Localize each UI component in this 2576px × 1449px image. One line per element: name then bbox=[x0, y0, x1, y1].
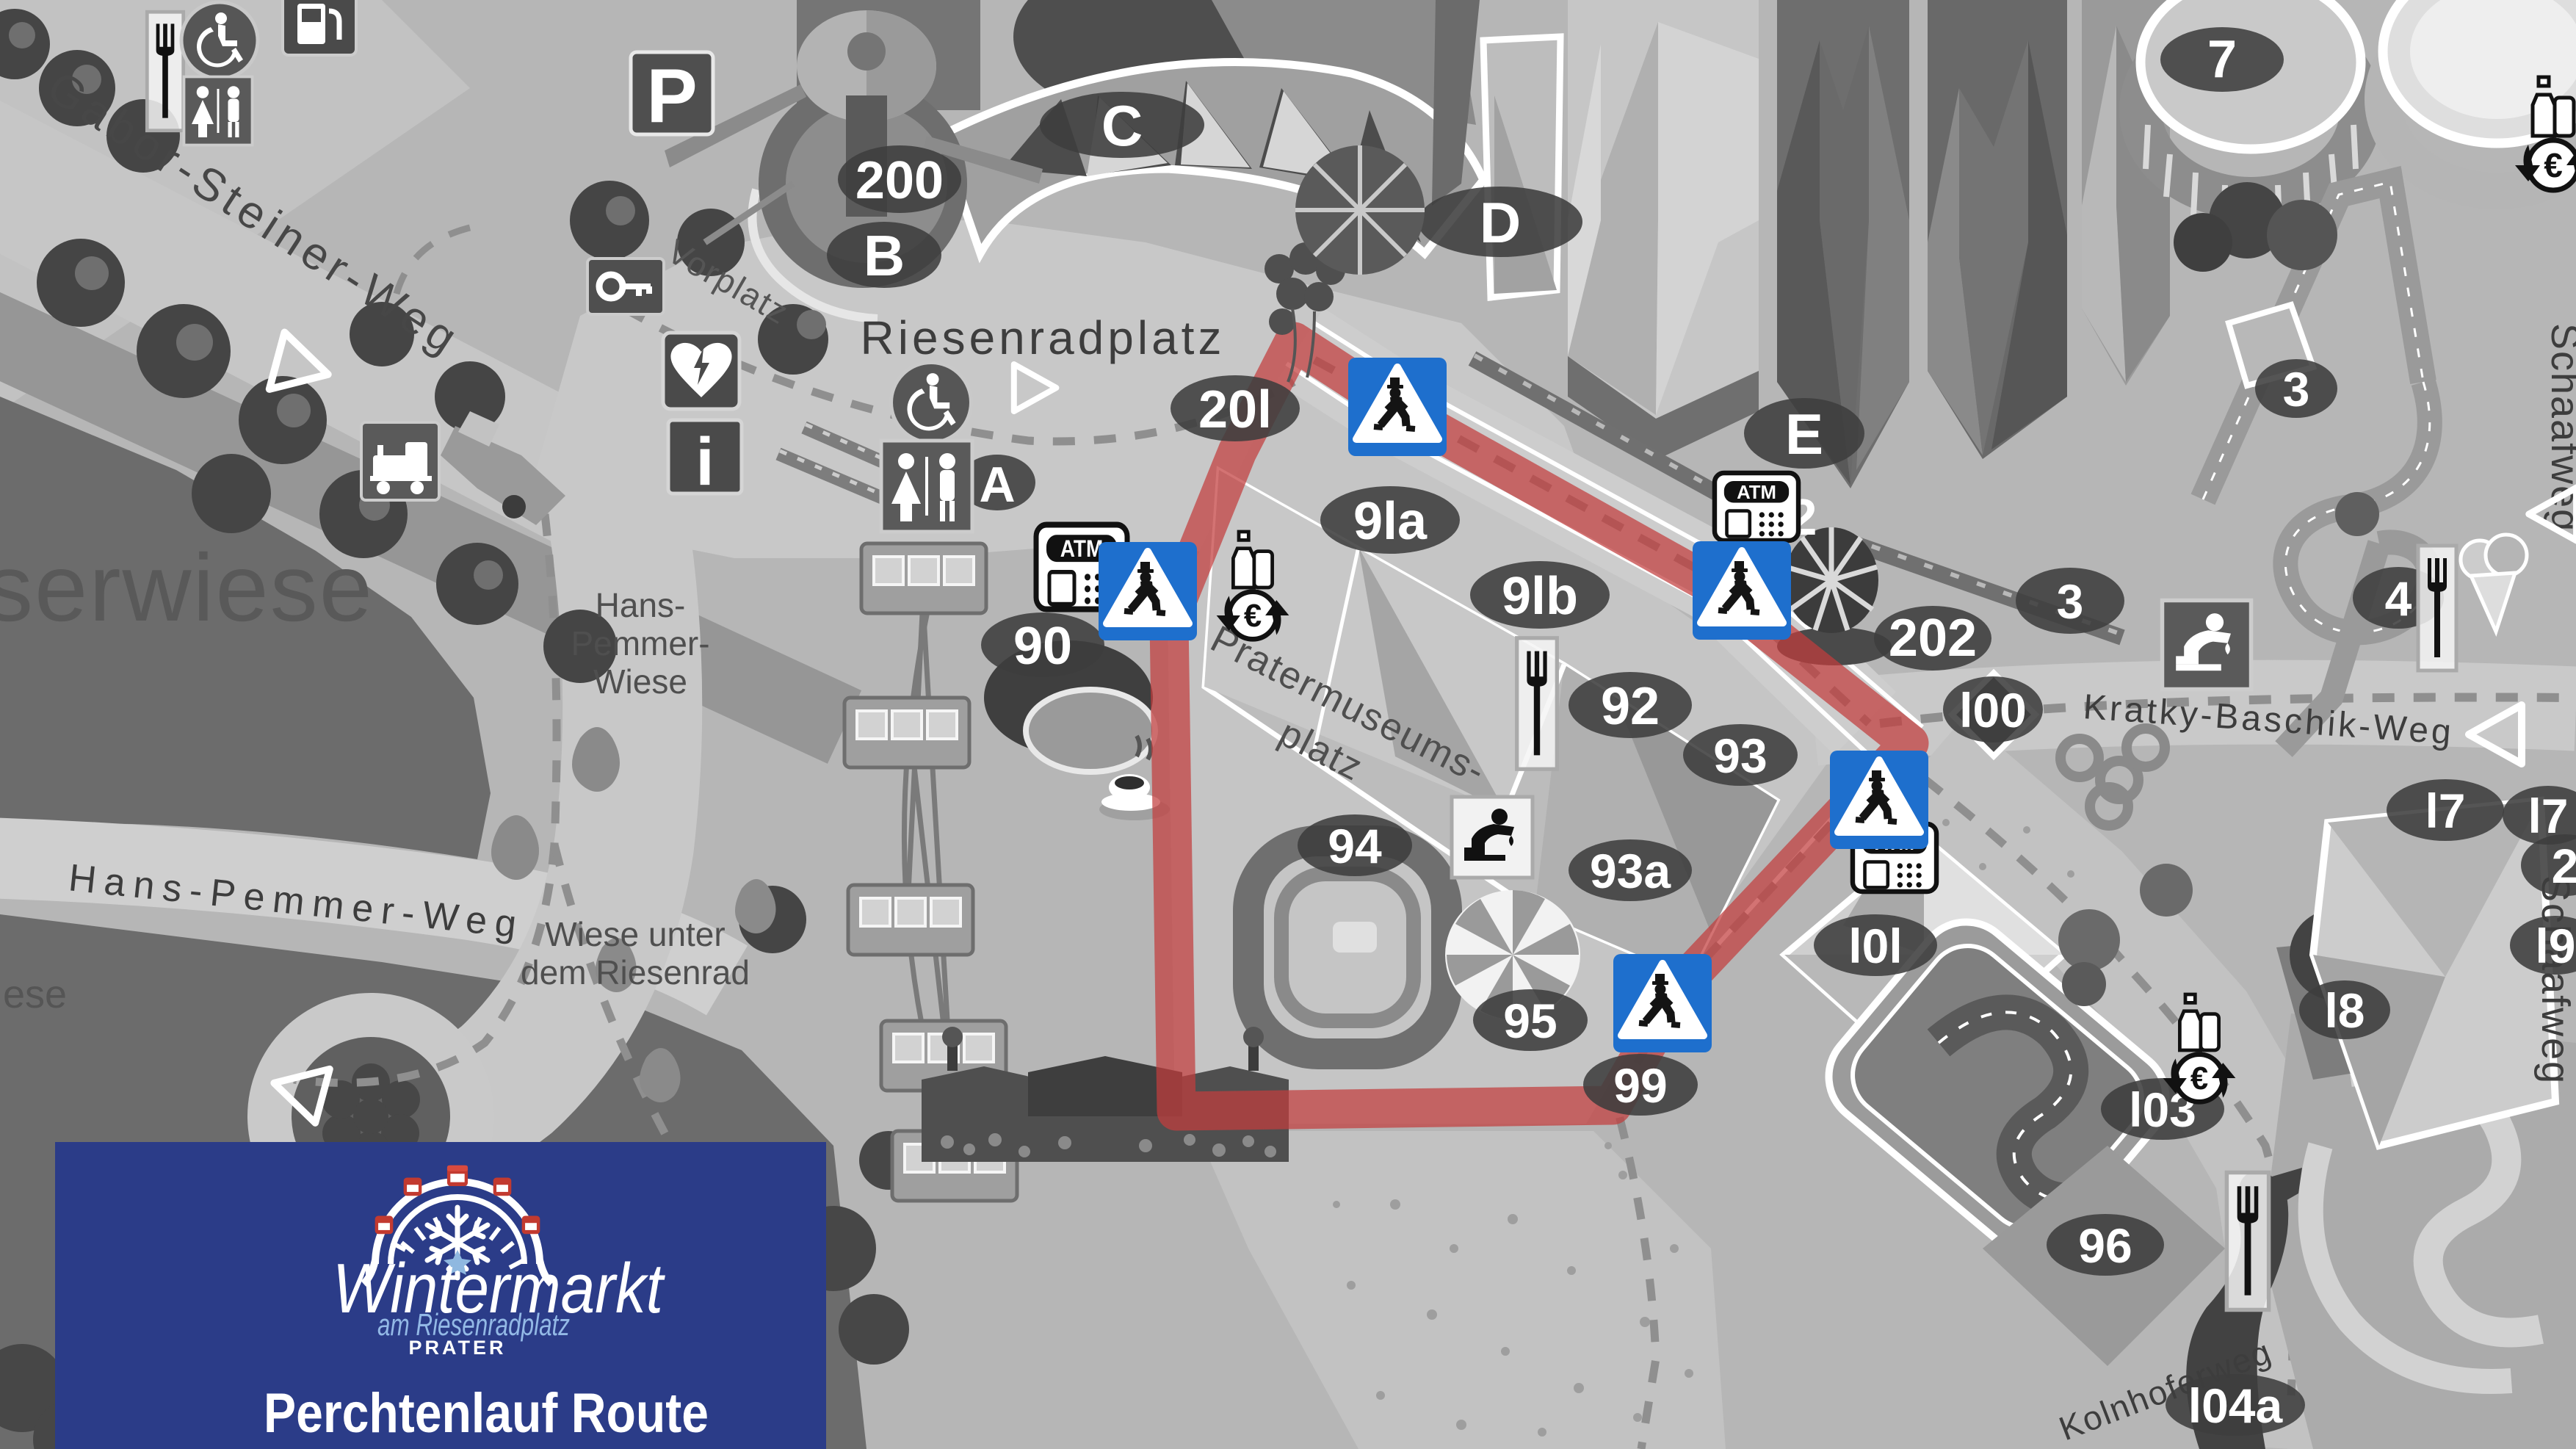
svg-text:ese: ese bbox=[3, 972, 67, 1016]
svg-text:C: C bbox=[1101, 93, 1143, 158]
svg-text:92: 92 bbox=[1601, 677, 1660, 736]
svg-text:93: 93 bbox=[1713, 729, 1767, 783]
svg-text:3: 3 bbox=[2057, 574, 2084, 629]
svg-text:l0l: l0l bbox=[1848, 919, 1902, 973]
svg-text:4: 4 bbox=[2385, 571, 2412, 626]
svg-text:l04a: l04a bbox=[2188, 1378, 2284, 1433]
svg-text:A: A bbox=[979, 457, 1015, 513]
svg-text:Schaafweg: Schaafweg bbox=[2533, 875, 2576, 1085]
svg-text:90: 90 bbox=[1013, 617, 1072, 676]
svg-text:Pemmer-: Pemmer- bbox=[571, 624, 709, 662]
svg-text:7: 7 bbox=[2207, 30, 2237, 89]
svg-text:E: E bbox=[1785, 402, 1823, 466]
svg-text:dem Riesenrad: dem Riesenrad bbox=[521, 953, 750, 991]
svg-text:l7: l7 bbox=[2528, 789, 2568, 843]
svg-text:D: D bbox=[1480, 190, 1521, 255]
svg-text:Perchtenlauf Route: Perchtenlauf Route bbox=[264, 1382, 709, 1445]
svg-text:l00: l00 bbox=[1959, 683, 2027, 737]
svg-text:3: 3 bbox=[2283, 362, 2310, 416]
svg-text:9la: 9la bbox=[1353, 492, 1428, 551]
svg-text:Wiese unter: Wiese unter bbox=[545, 915, 725, 953]
svg-text:96: 96 bbox=[2078, 1218, 2132, 1273]
svg-text:PRATER: PRATER bbox=[408, 1337, 506, 1359]
svg-text:95: 95 bbox=[1503, 994, 1557, 1048]
svg-text:l7: l7 bbox=[2425, 784, 2465, 838]
svg-text:202: 202 bbox=[1889, 609, 1977, 668]
svg-text:Wiese: Wiese bbox=[593, 662, 687, 701]
svg-text:Hans-: Hans- bbox=[596, 586, 686, 624]
svg-text:Riesenradplatz: Riesenradplatz bbox=[861, 311, 1226, 364]
svg-text:200: 200 bbox=[855, 151, 944, 210]
svg-text:99: 99 bbox=[1613, 1058, 1667, 1113]
svg-text:94: 94 bbox=[1328, 819, 1382, 873]
svg-text:93a: 93a bbox=[1590, 844, 1671, 898]
svg-text:P: P bbox=[646, 54, 697, 139]
svg-text:2: 2 bbox=[2552, 839, 2576, 893]
svg-text:B: B bbox=[864, 223, 905, 288]
svg-text:9lb: 9lb bbox=[1502, 567, 1578, 626]
svg-text:serwiese: serwiese bbox=[0, 534, 374, 641]
svg-text:l8: l8 bbox=[2324, 983, 2365, 1038]
svg-text:l9: l9 bbox=[2535, 919, 2575, 973]
svg-text:i: i bbox=[695, 424, 714, 499]
svg-text:20l: 20l bbox=[1198, 380, 1272, 439]
